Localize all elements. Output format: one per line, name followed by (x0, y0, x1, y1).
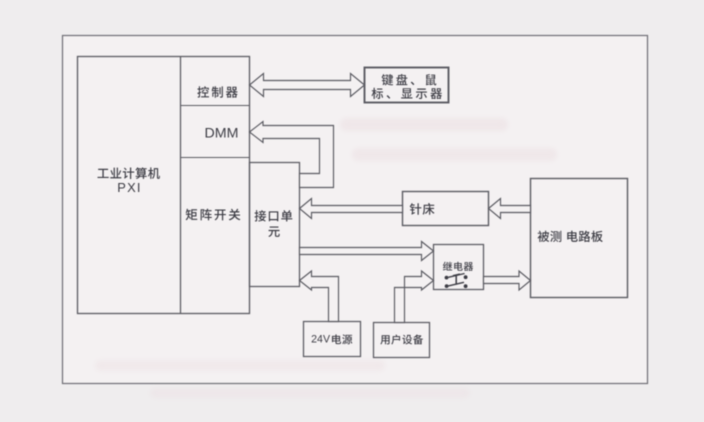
svg-text:PXI: PXI (117, 180, 141, 195)
svg-text:24V: 24V (311, 334, 331, 346)
svg-text:DMM: DMM (205, 126, 239, 142)
